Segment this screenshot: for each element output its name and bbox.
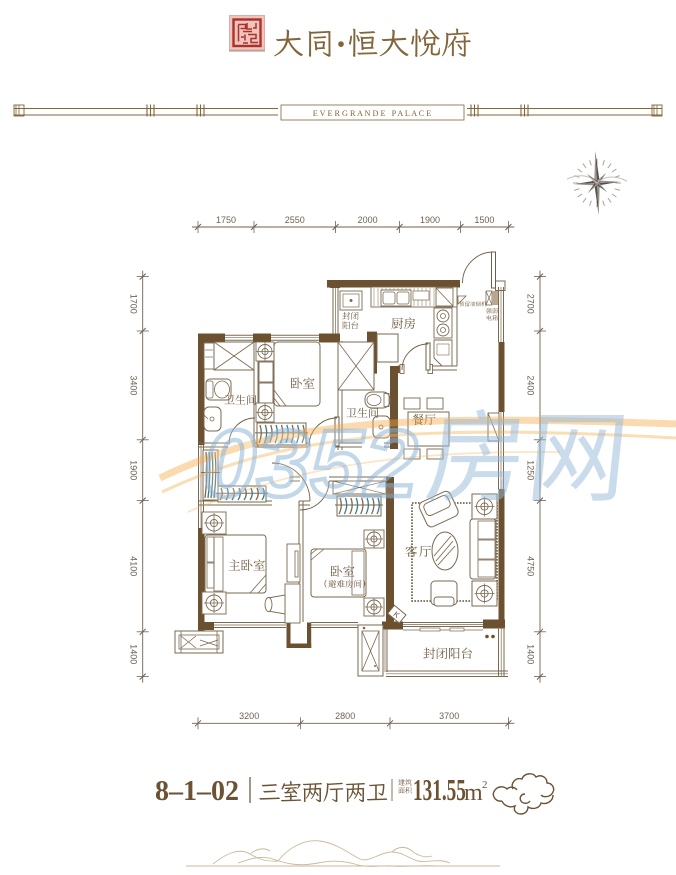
svg-text:0352: 0352	[203, 411, 418, 517]
svg-text:1700: 1700	[129, 294, 139, 314]
svg-text:3400: 3400	[129, 375, 139, 395]
svg-text:8–1–02: 8–1–02	[155, 776, 239, 807]
svg-text:(: (	[324, 579, 327, 588]
svg-text:2: 2	[482, 779, 488, 791]
svg-text:3200: 3200	[239, 711, 259, 721]
svg-text:2800: 2800	[335, 711, 355, 721]
svg-text:2550: 2550	[285, 215, 305, 225]
svg-text:1750: 1750	[216, 215, 236, 225]
svg-text:1900: 1900	[420, 215, 440, 225]
svg-text:m: m	[464, 780, 483, 806]
svg-text:4750: 4750	[526, 556, 536, 576]
svg-text:1900: 1900	[129, 460, 139, 480]
svg-text:): )	[363, 579, 366, 588]
svg-text:1400: 1400	[526, 644, 536, 664]
svg-text:4100: 4100	[129, 556, 139, 576]
svg-text:2000: 2000	[358, 215, 378, 225]
svg-text:1400: 1400	[129, 644, 139, 664]
svg-text:E V E R G R A N D E P A L A: E V E R G R A N D E P A L A C E	[313, 109, 432, 118]
svg-text:1250: 1250	[526, 460, 536, 480]
svg-text:2700: 2700	[526, 294, 536, 314]
svg-text:1500: 1500	[474, 215, 494, 225]
svg-text:2400: 2400	[526, 375, 536, 395]
svg-text:131.55: 131.55	[413, 772, 466, 807]
svg-text:3700: 3700	[439, 711, 459, 721]
